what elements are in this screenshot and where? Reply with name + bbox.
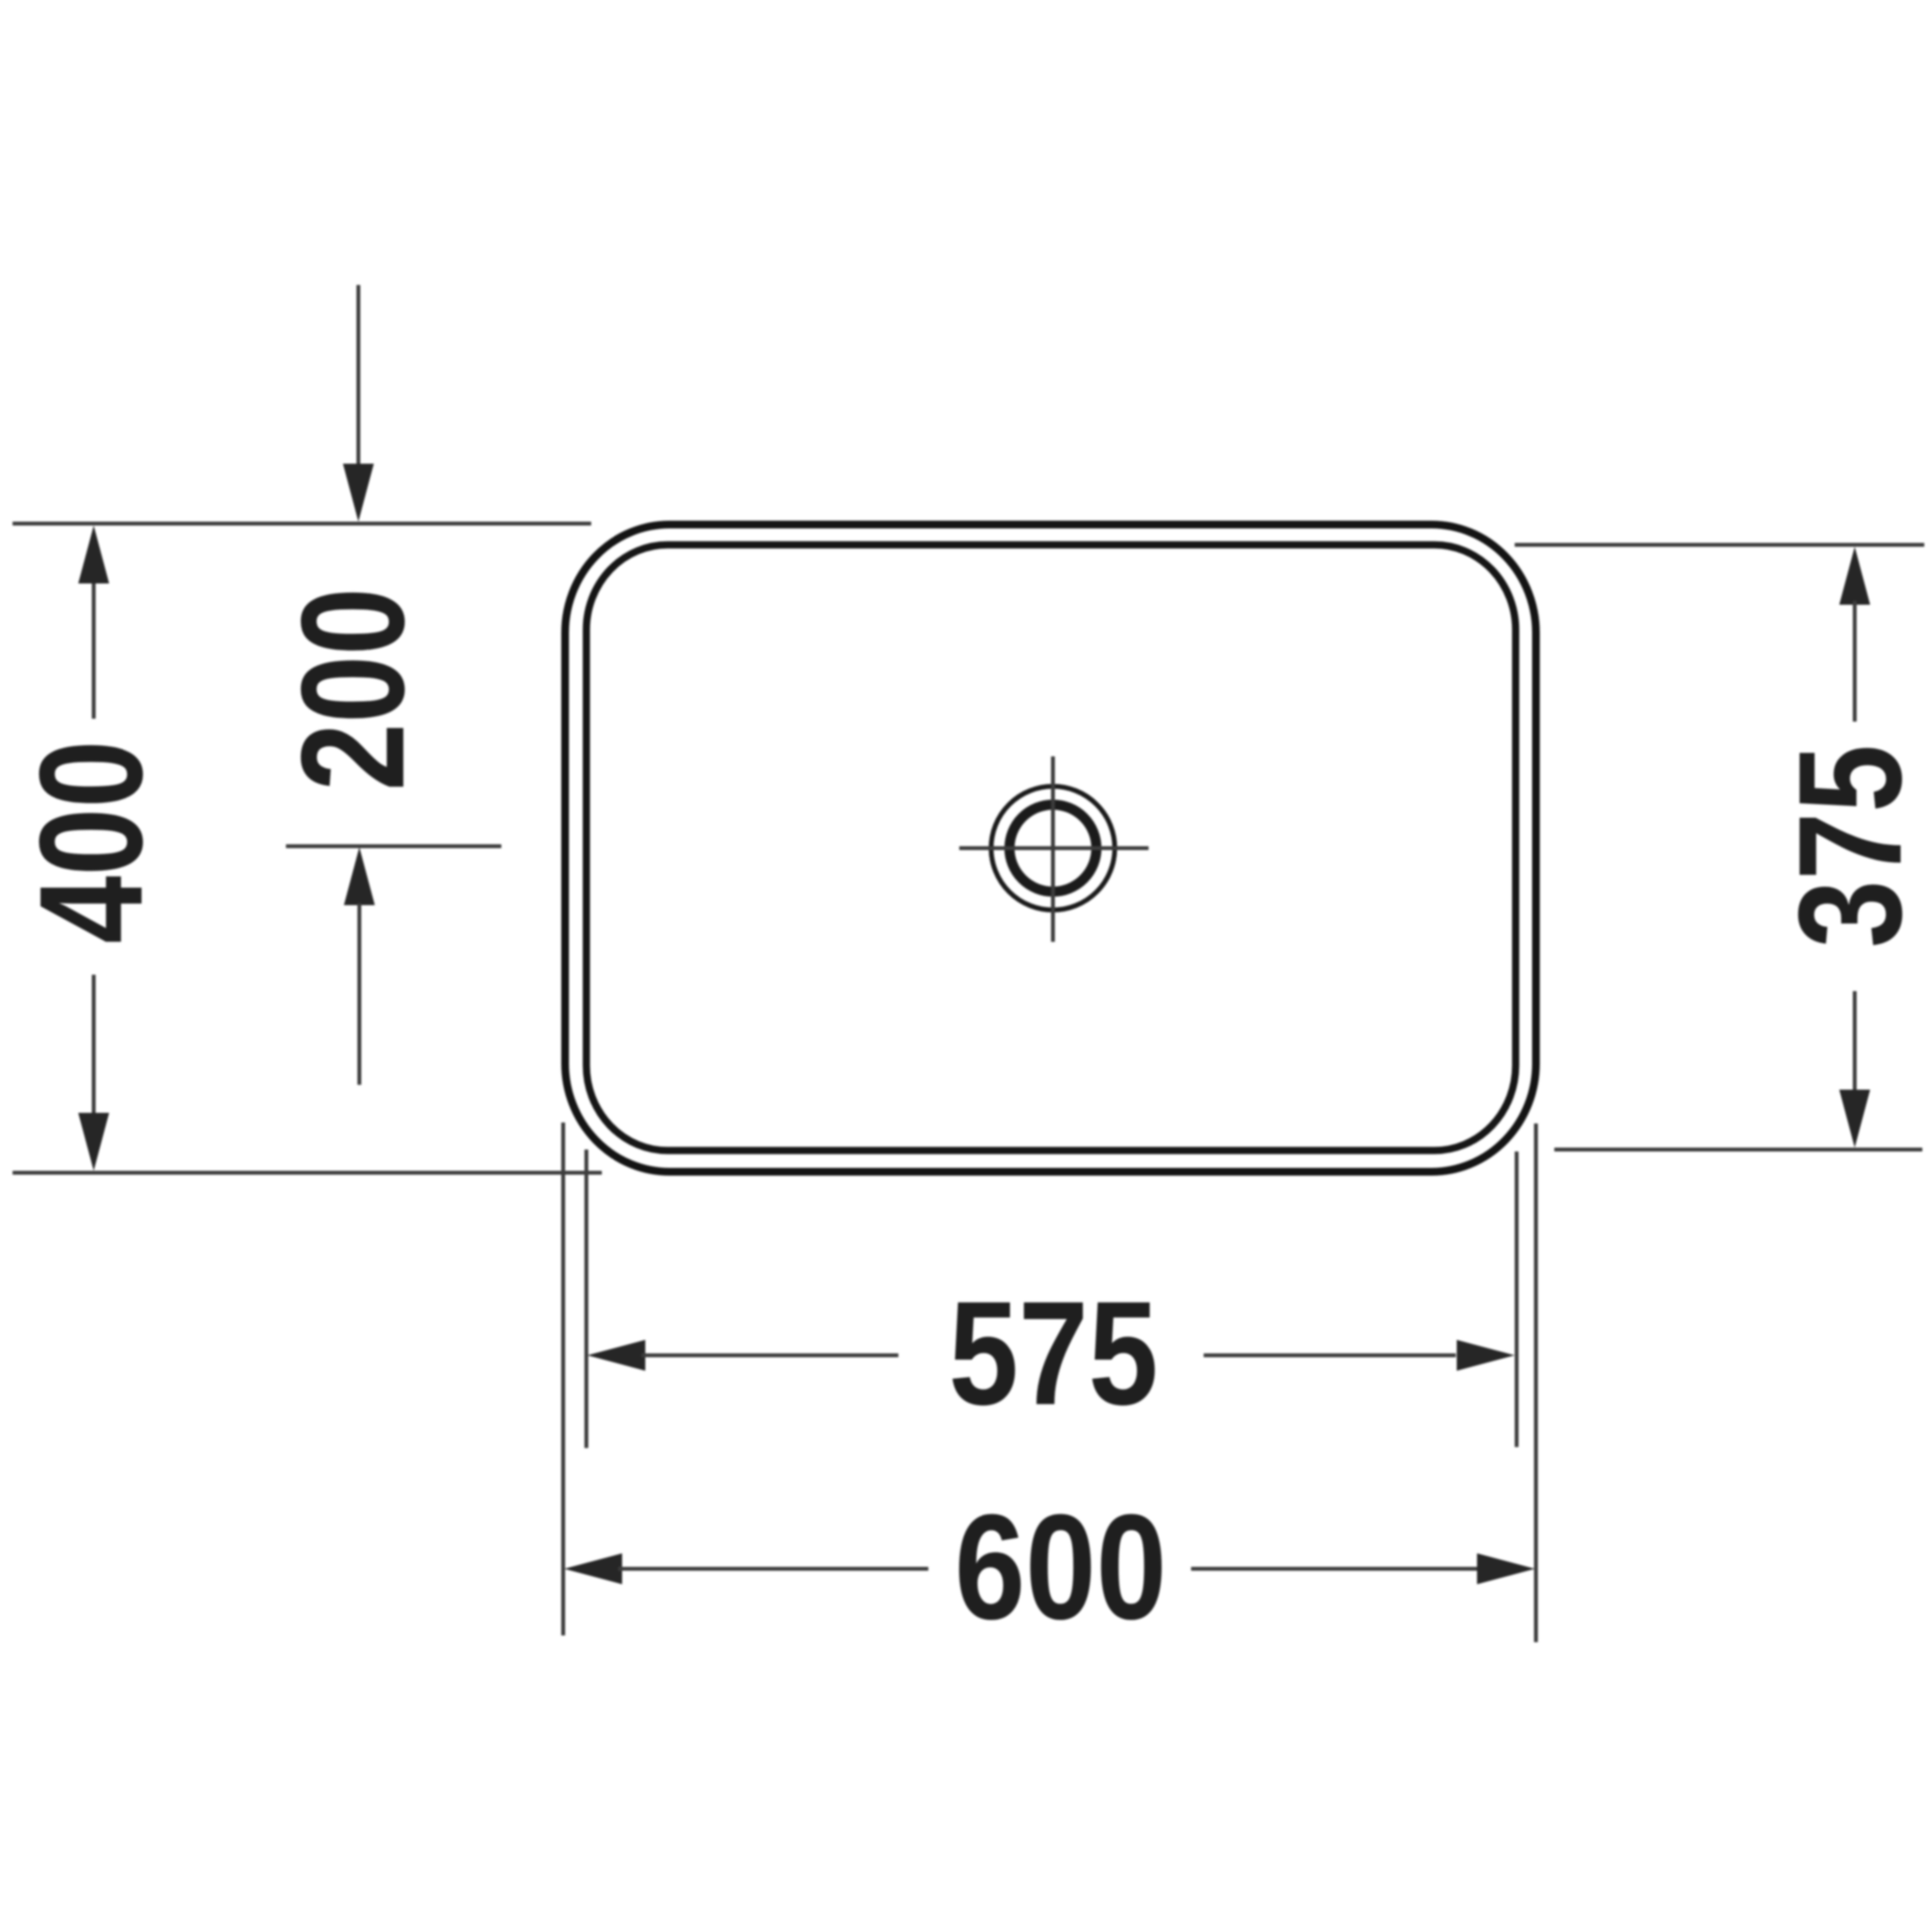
- svg-text:575: 575: [949, 1271, 1158, 1436]
- svg-text:400: 400: [9, 740, 173, 943]
- svg-text:200: 200: [270, 587, 435, 790]
- svg-text:375: 375: [1768, 745, 1932, 948]
- svg-text:600: 600: [954, 1484, 1167, 1650]
